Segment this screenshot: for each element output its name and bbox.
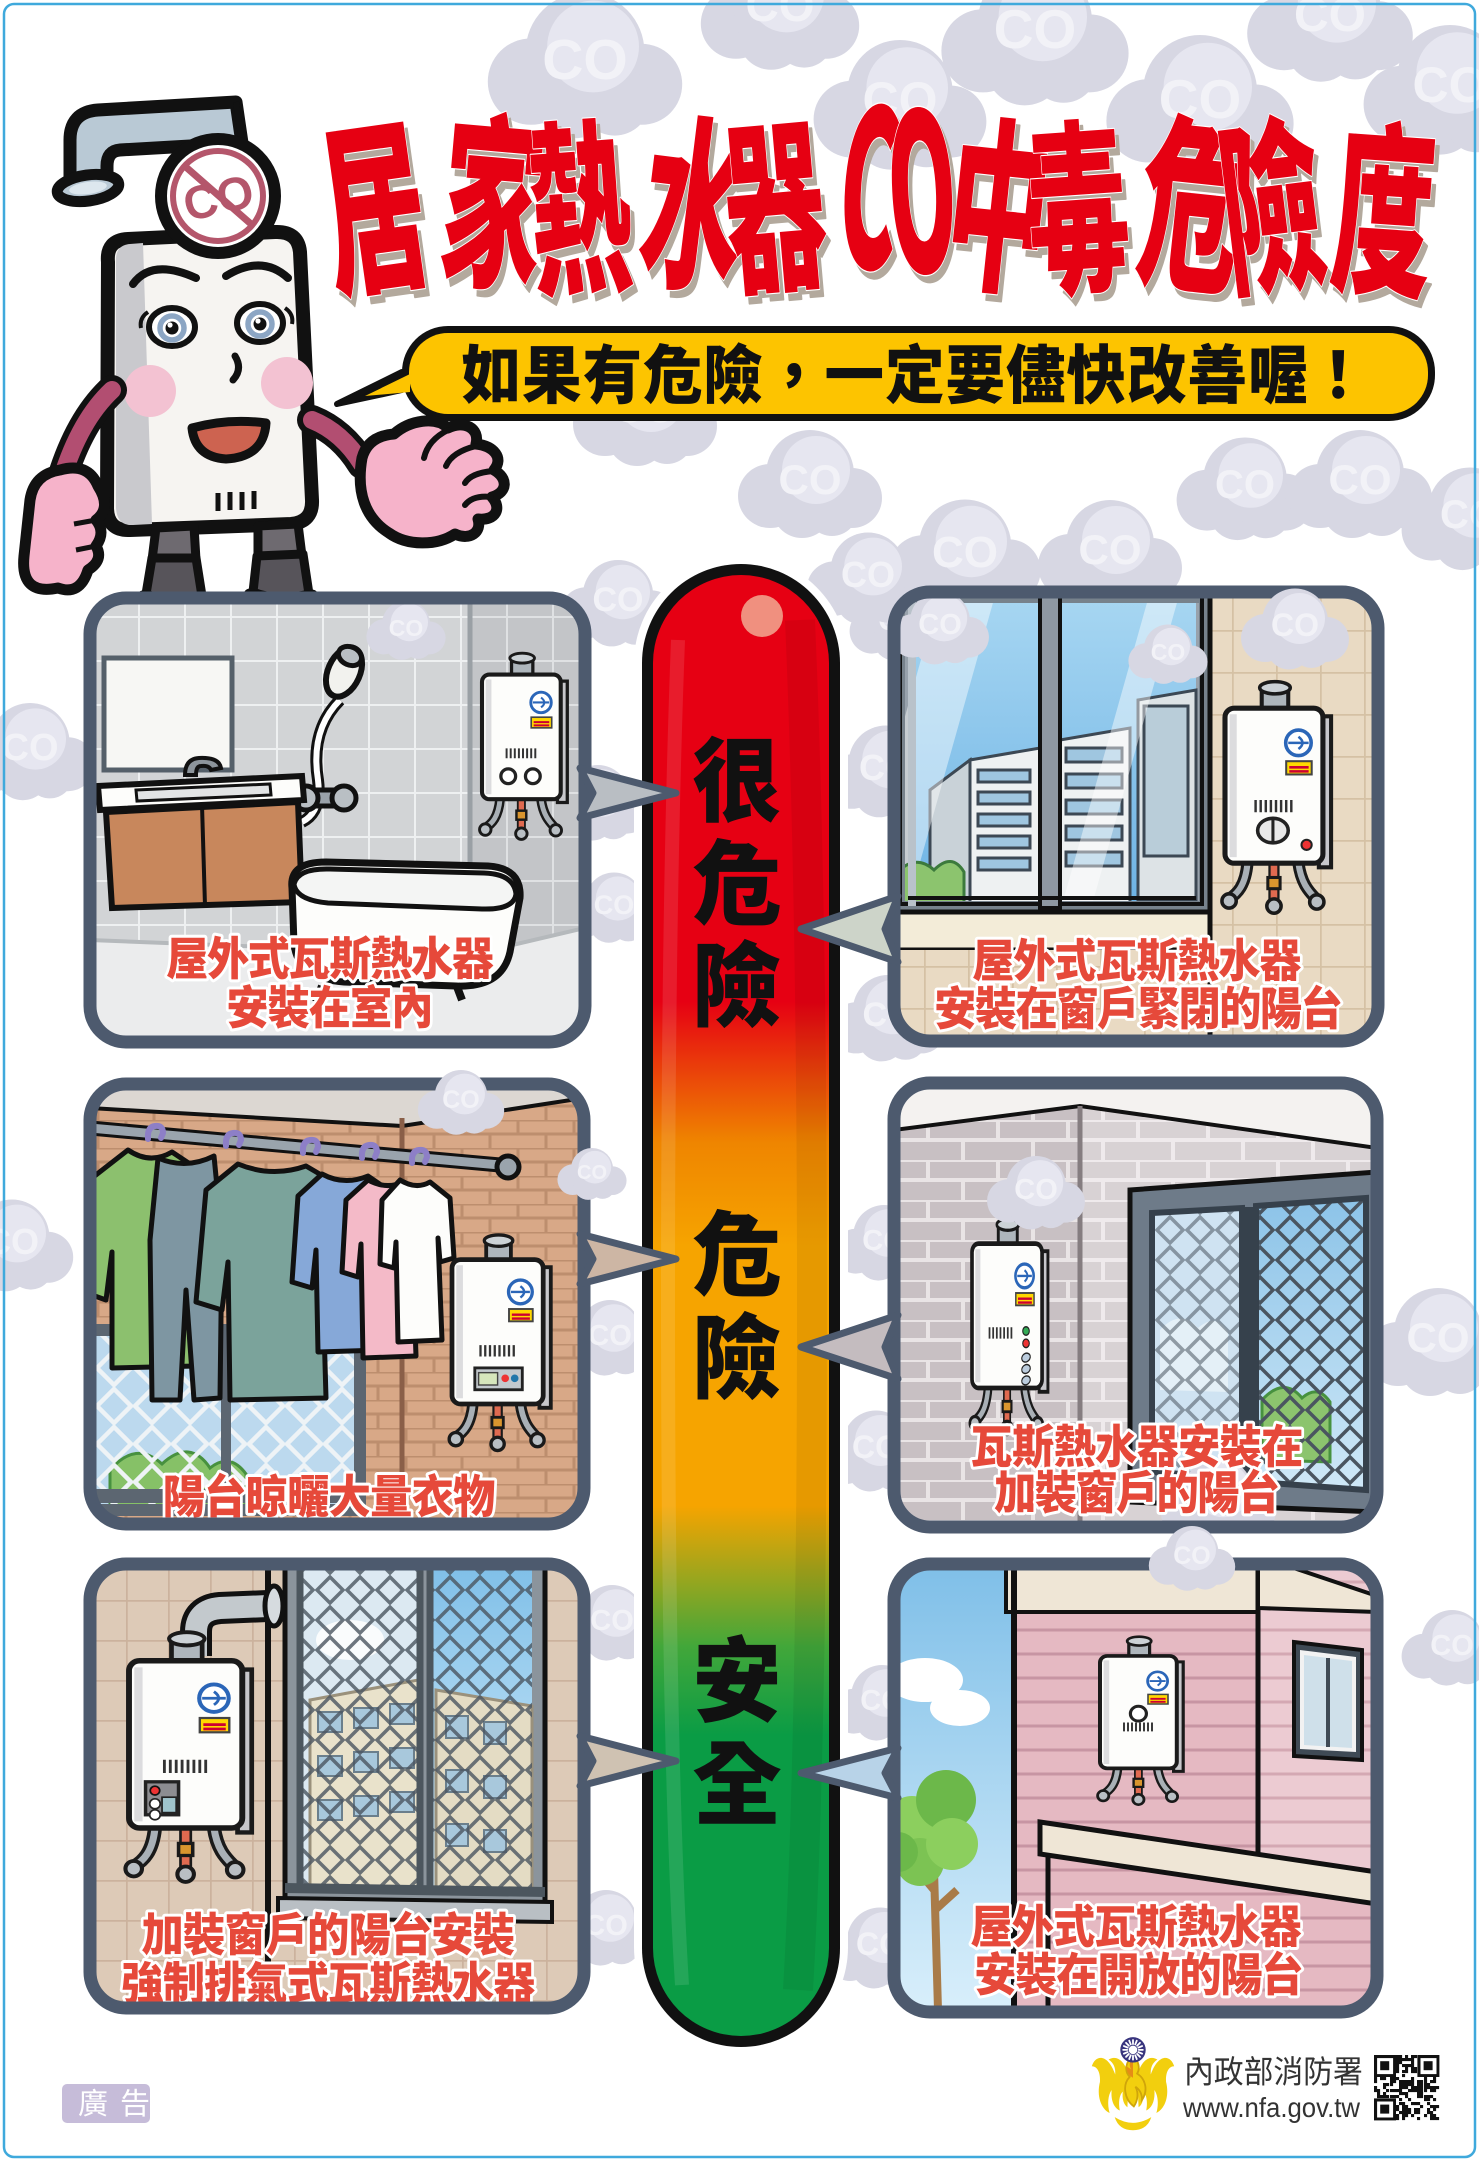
svg-text:CO: CO [389,615,424,641]
svg-text:CO: CO [918,609,962,641]
svg-text:CO: CO [1271,607,1319,643]
svg-text:CO: CO [584,1910,628,1942]
svg-text:CO: CO [1079,526,1142,573]
svg-text:CO: CO [1430,1630,1474,1662]
svg-text:CO: CO [588,1320,632,1352]
svg-text:CO: CO [1173,1542,1211,1570]
svg-text:CO: CO [779,456,842,503]
svg-text:CO: CO [577,1162,607,1184]
svg-text:CO: CO [442,1086,480,1114]
svg-text:CO: CO [1151,639,1186,665]
svg-text:CO: CO [841,554,895,595]
svg-text:CO: CO [932,528,998,577]
svg-text:CO: CO [0,1221,39,1262]
svg-text:CO: CO [994,0,1077,60]
svg-text:CO: CO [593,581,644,619]
svg-text:www.nfa.gov.tw: www.nfa.gov.tw [1182,2092,1361,2123]
svg-text:CO: CO [542,28,628,92]
svg-text:CO: CO [1440,493,1479,537]
svg-text:CO: CO [2,727,59,769]
svg-text:CO: CO [1413,57,1479,113]
svg-text:CO: CO [1329,456,1392,503]
svg-text:CO: CO [1407,1314,1470,1361]
svg-text:CO: CO [590,1605,634,1637]
svg-text:CO: CO [594,890,635,920]
svg-text:CO: CO [1014,1174,1058,1206]
svg-text:CO: CO [1215,463,1275,507]
svg-text:CO: CO [1159,68,1242,130]
svg-text:CO: CO [1294,0,1366,42]
